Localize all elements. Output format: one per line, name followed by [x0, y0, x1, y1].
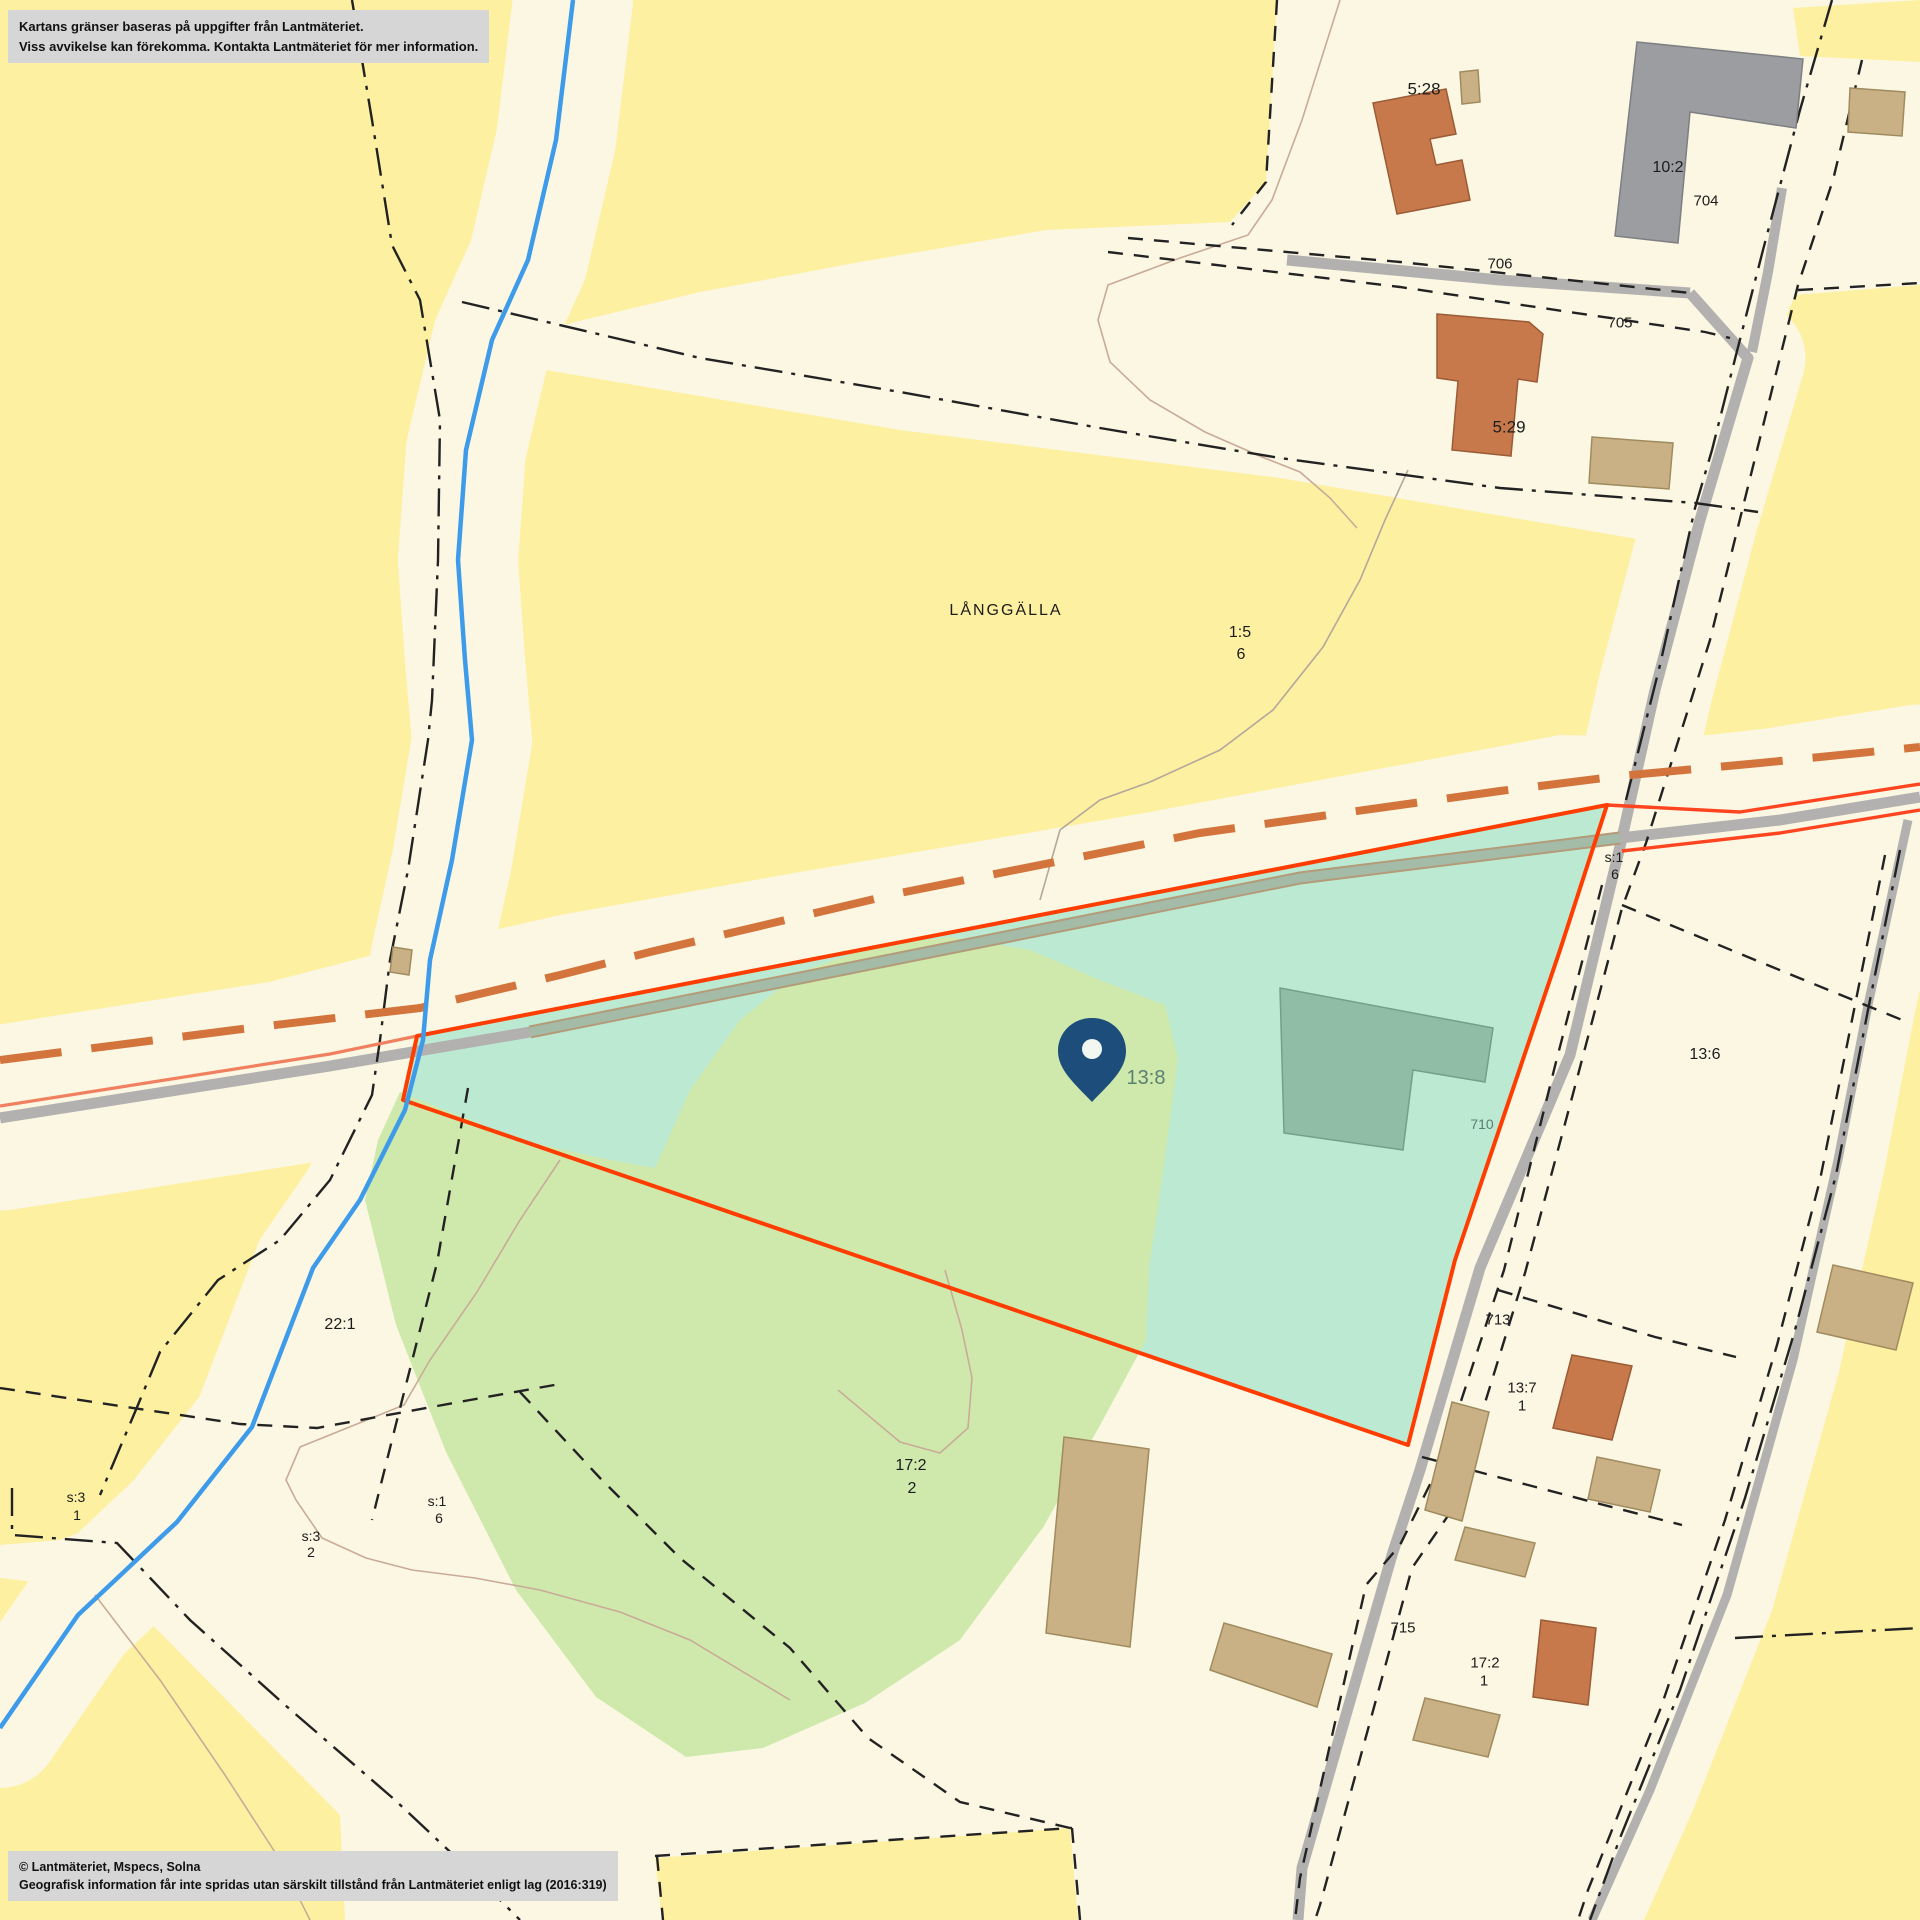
building-tan-17-2: [1046, 1437, 1149, 1647]
copyright-box: © Lantmäteriet, Mspecs, Solna Geografisk…: [8, 1851, 618, 1901]
field-northeast-corner: [1793, 0, 1920, 62]
disclaimer-line2: Viss avvikelse kan förekomma. Kontakta L…: [19, 37, 478, 57]
disclaimer-box: Kartans gränser baseras på uppgifter frå…: [8, 10, 489, 63]
pin-hole: [1082, 1039, 1102, 1059]
building-tan-5-29: [1589, 437, 1673, 489]
building-shed-west: [390, 947, 412, 975]
copyright-line1: © Lantmäteriet, Mspecs, Solna: [19, 1858, 607, 1876]
map-canvas[interactable]: 5:2810:27047067055:29LÅNGGÄLLA1:56s:1613…: [0, 0, 1920, 1920]
disclaimer-line1: Kartans gränser baseras på uppgifter frå…: [19, 17, 478, 37]
copyright-line2: Geografisk information får inte spridas …: [19, 1876, 607, 1894]
building-shed-5-28: [1460, 70, 1480, 104]
cadastral-map: [0, 0, 1920, 1920]
building-tan-northeast: [1848, 88, 1905, 136]
building-orange-17-2-1: [1533, 1620, 1596, 1705]
